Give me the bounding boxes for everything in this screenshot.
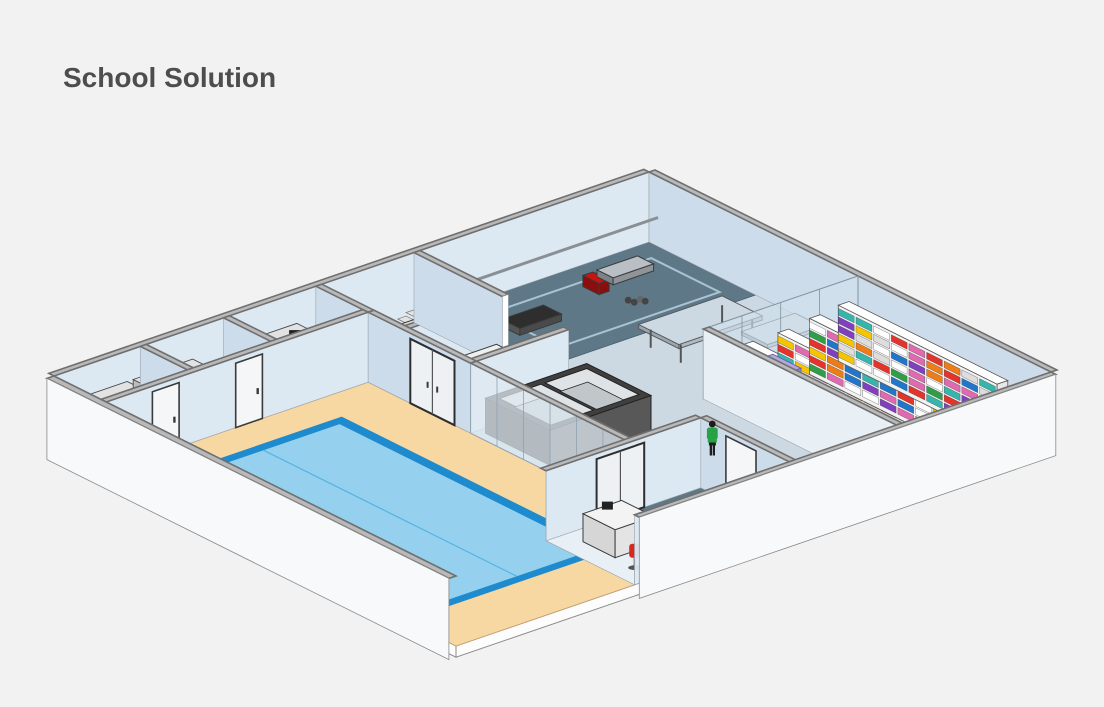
svg-text:School Solution: School Solution: [63, 62, 276, 93]
